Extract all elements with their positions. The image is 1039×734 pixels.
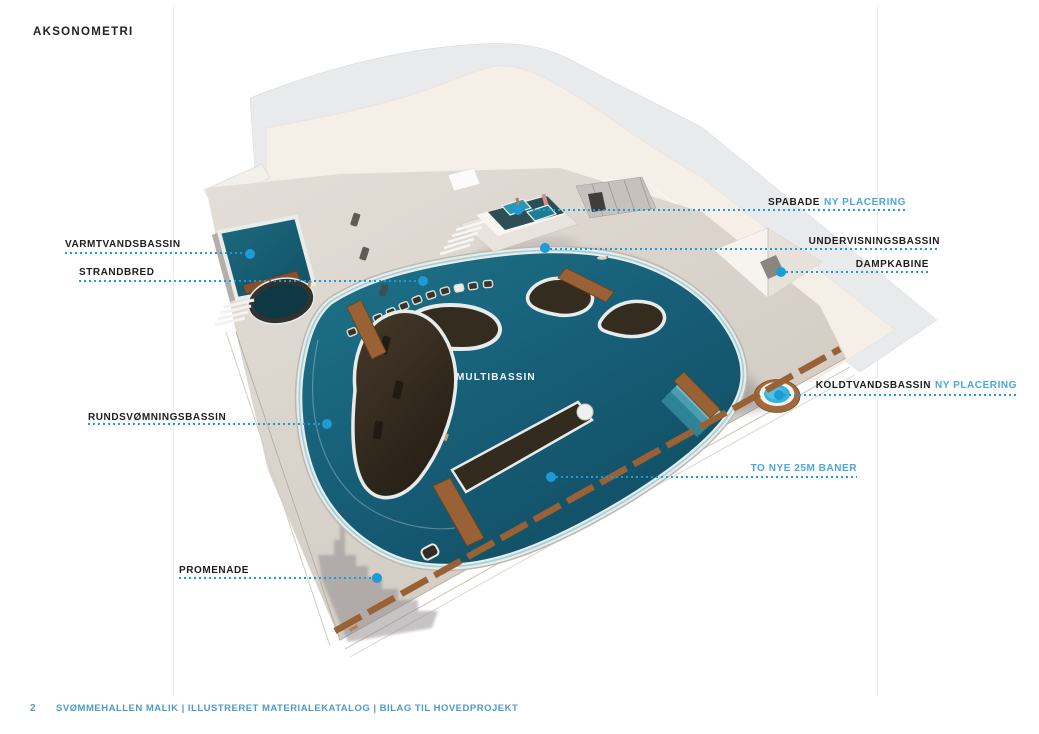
- callout-label: PROMENADE: [179, 565, 249, 576]
- axonometric-illustration: [0, 0, 1039, 734]
- leader-dot: [546, 472, 556, 482]
- callout-label: VARMTVANDSBASSIN: [65, 239, 181, 250]
- callout-label: STRANDBRED: [79, 267, 155, 278]
- page-number: 2: [30, 703, 36, 714]
- multibassin-label: MULTIBASSIN: [456, 372, 536, 383]
- leader-line: [79, 280, 417, 282]
- callout-spabade: SPABADENY PLACERING: [768, 198, 906, 208]
- catalog-page: AKSONOMETRI MULTIBASSIN VARMTVANDSBASSIN…: [0, 0, 1039, 734]
- callout-promenade: PROMENADE: [179, 566, 249, 576]
- leader-line: [65, 252, 245, 254]
- callout-label: RUNDSVØMNINGSBASSIN: [88, 412, 226, 423]
- leader-line: [88, 423, 321, 425]
- leader-line: [556, 476, 857, 478]
- callout-label: DAMPKABINE: [856, 259, 929, 270]
- leader-dot: [418, 276, 428, 286]
- leader-line: [523, 209, 906, 211]
- callout-label: KOLDTVANDSBASSIN: [816, 380, 931, 391]
- callout-koldtvandsbassin: KOLDTVANDSBASSINNY PLACERING: [816, 381, 1017, 391]
- warm-water-basin: [212, 217, 318, 329]
- callout-varmtvandsbassin: VARMTVANDSBASSIN: [65, 240, 181, 250]
- leader-dot: [322, 419, 332, 429]
- leader-dot: [774, 390, 784, 400]
- leader-dot: [372, 573, 382, 583]
- callout-label-suffix: NY PLACERING: [935, 380, 1017, 391]
- leader-line: [550, 248, 940, 250]
- callout-strandbred: STRANDBRED: [79, 268, 155, 278]
- footer-text: SVØMMEHALLEN MALIK | ILLUSTRERET MATERIA…: [56, 703, 518, 714]
- callout-label: TO NYE 25M BANER: [751, 463, 857, 474]
- leader-dot: [540, 243, 550, 253]
- leader-dot: [245, 249, 255, 259]
- page-title: AKSONOMETRI: [33, 26, 134, 38]
- callout-label-suffix: NY PLACERING: [824, 197, 906, 208]
- callout-to-nye-25m-baner: TO NYE 25M BANER: [751, 464, 857, 474]
- leader-line: [784, 394, 1017, 396]
- callout-label: UNDERVISNINGSBASSIN: [809, 236, 940, 247]
- leader-dot: [513, 205, 523, 215]
- callout-dampkabine: DAMPKABINE: [856, 260, 929, 270]
- callout-rundsvomningsbassin: RUNDSVØMNINGSBASSIN: [88, 413, 226, 423]
- callout-undervisningsbassin: UNDERVISNINGSBASSIN: [809, 237, 940, 247]
- leader-line: [786, 271, 929, 273]
- callout-label: SPABADE: [768, 197, 820, 208]
- leader-line: [179, 577, 371, 579]
- leader-dot: [776, 267, 786, 277]
